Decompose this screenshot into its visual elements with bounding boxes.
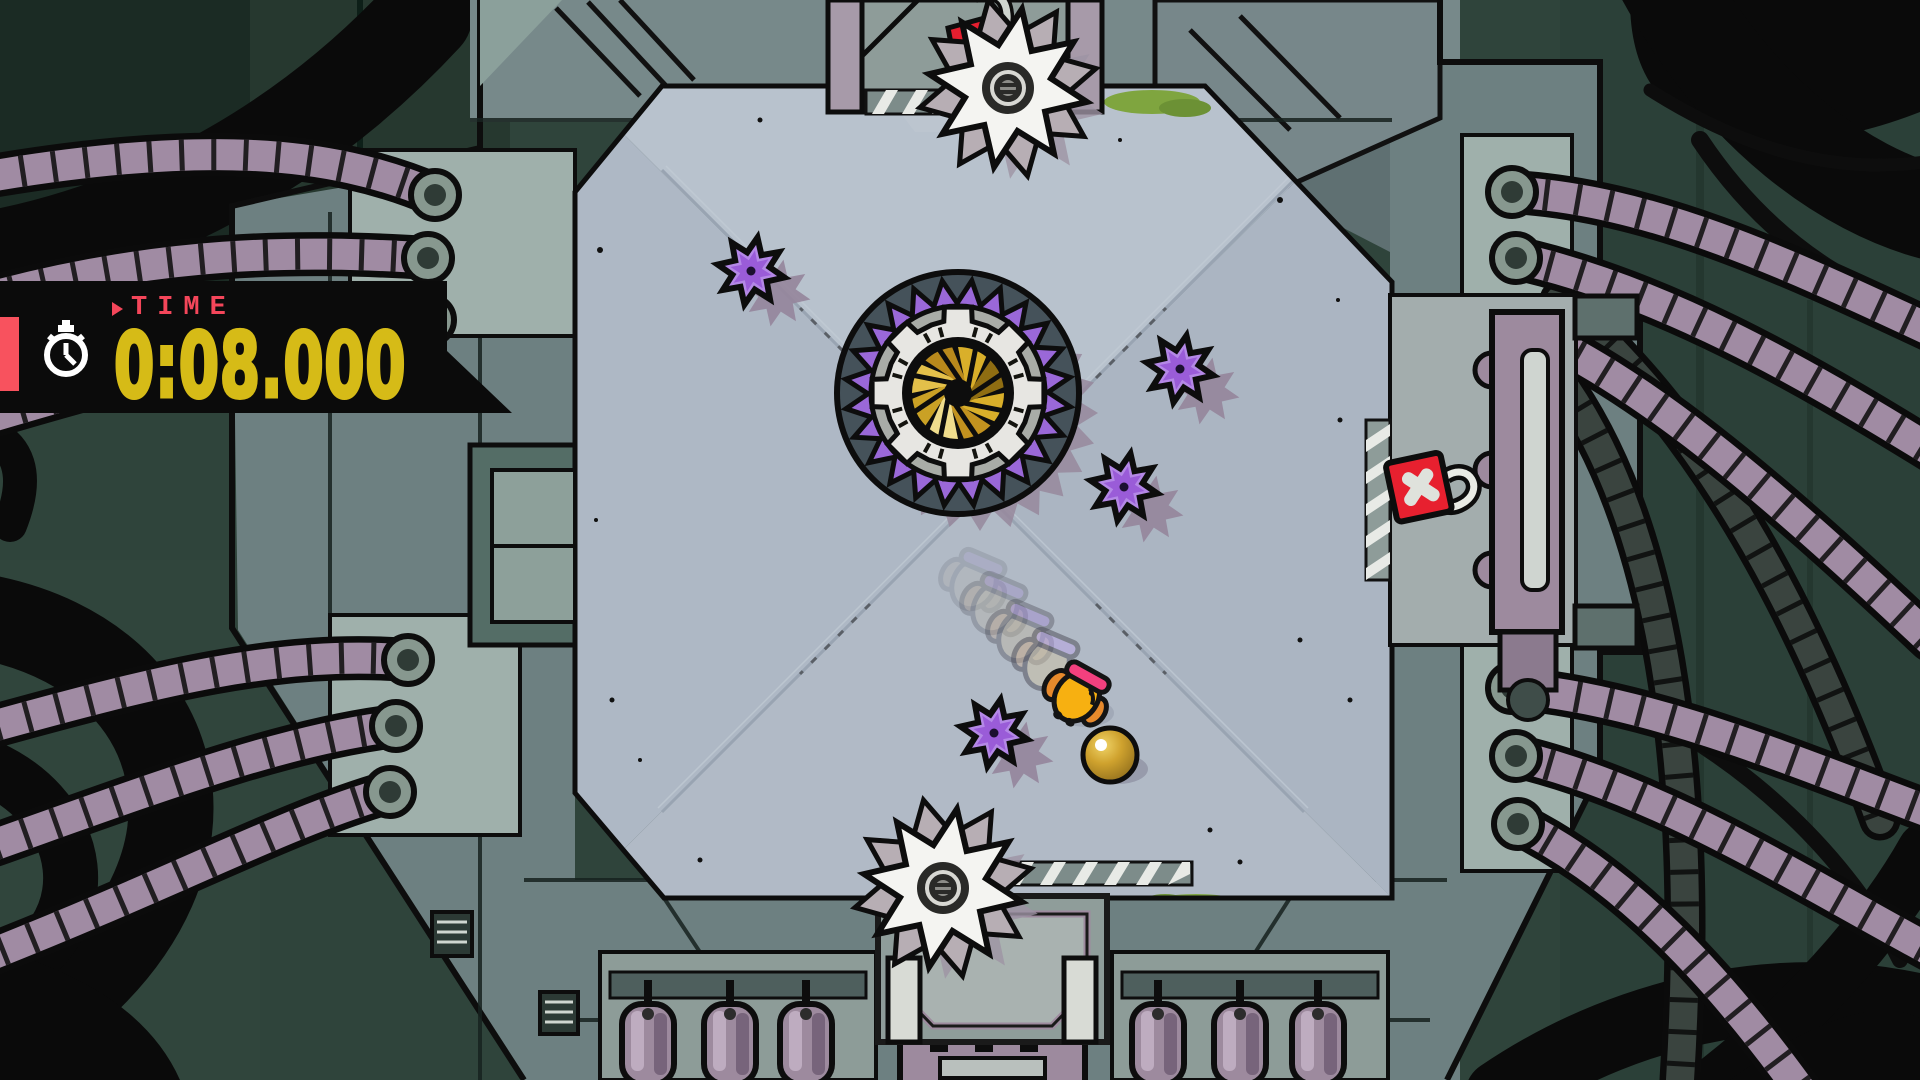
tube-socket: [372, 702, 420, 750]
tube-socket: [1494, 800, 1542, 848]
game-viewport[interactable]: TIME 0:08.000: [0, 0, 1920, 1080]
tube-socket: [404, 234, 452, 282]
tube-socket: [366, 768, 414, 816]
game-world: [0, 0, 1920, 1080]
hazard-stripe-bottom: [1002, 862, 1192, 885]
hud-accent-stripe: [0, 317, 19, 391]
time-value: 0:08.000: [114, 321, 406, 411]
tube-socket: [1488, 168, 1536, 216]
tube-socket: [411, 171, 459, 219]
hazard-stripe-right: [1366, 420, 1390, 580]
stopwatch-icon: [36, 319, 96, 381]
tube-socket: [1492, 732, 1540, 780]
door-left-recess: [470, 445, 575, 645]
timer-hud: TIME 0:08.000: [0, 281, 512, 413]
tube-socket: [384, 636, 432, 684]
tube-socket: [1492, 234, 1540, 282]
